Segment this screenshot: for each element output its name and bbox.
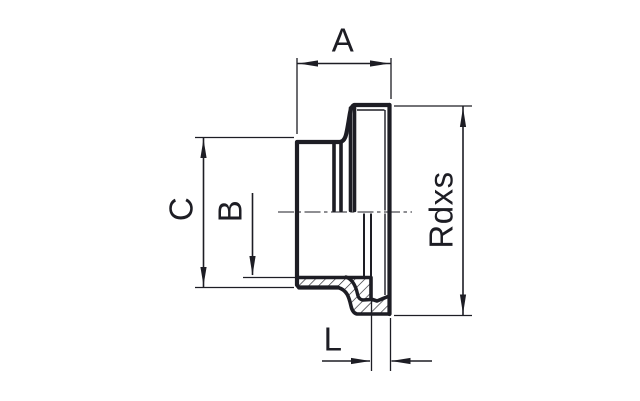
dimension-label-thread: Rdxs <box>425 171 458 248</box>
dimension-a <box>297 58 391 134</box>
dimension-b <box>243 193 297 278</box>
fitting-cross-section-drawing <box>0 0 640 401</box>
technical-drawing-page: A C B Rdxs L <box>0 0 640 401</box>
section-hatching <box>297 277 390 314</box>
dimension-label-c: C <box>165 197 198 221</box>
dimension-label-l: L <box>324 323 343 356</box>
dimension-label-a: A <box>332 24 355 57</box>
dimension-label-b: B <box>214 200 247 223</box>
